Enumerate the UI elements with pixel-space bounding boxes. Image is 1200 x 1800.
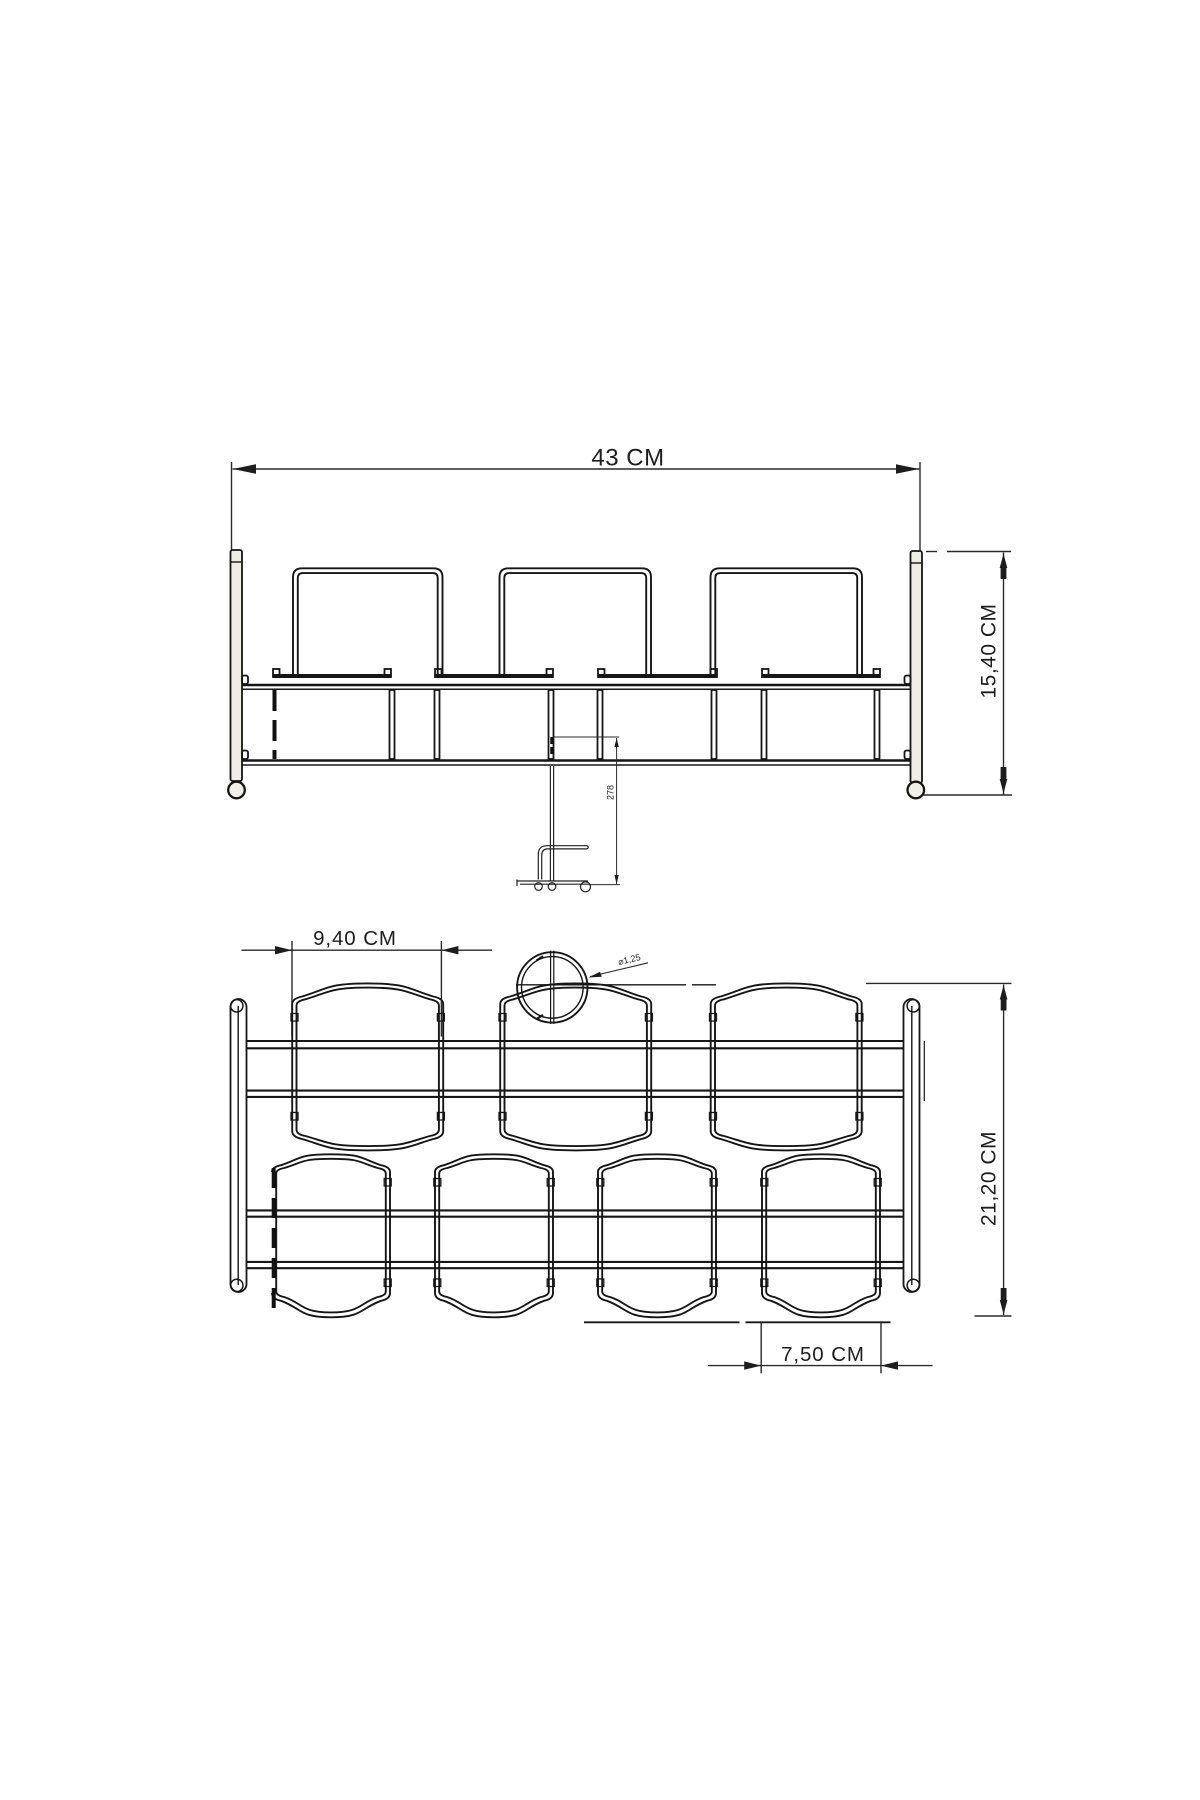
svg-text:21,20 CM: 21,20 CM [978,1131,1001,1226]
svg-text:43 CM: 43 CM [591,445,664,472]
svg-text:9,40 CM: 9,40 CM [313,927,397,950]
svg-text:7,50 CM: 7,50 CM [781,1343,865,1366]
svg-text:15,40 CM: 15,40 CM [978,603,1001,698]
svg-text:278: 278 [606,785,616,800]
